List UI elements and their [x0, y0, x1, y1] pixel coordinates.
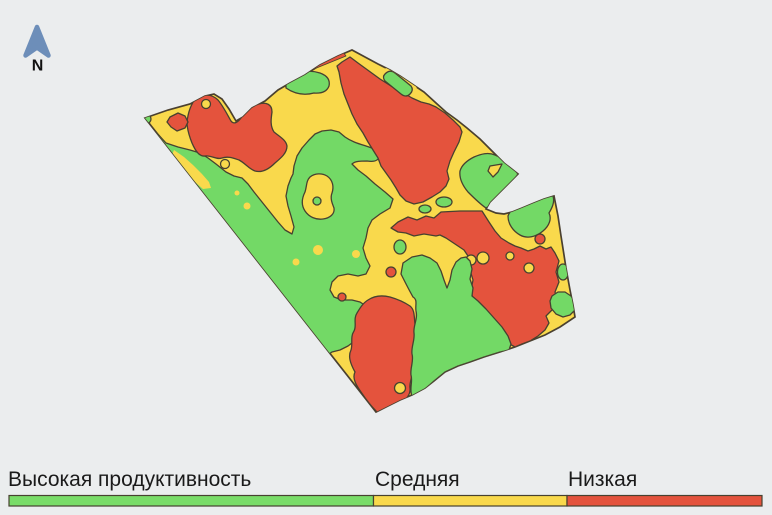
svg-text:Средняя: Средняя [375, 468, 460, 491]
svg-text:Высокая продуктивность: Высокая продуктивность [8, 468, 251, 491]
svg-text:Низкая: Низкая [568, 468, 637, 491]
svg-text:N: N [32, 58, 44, 75]
